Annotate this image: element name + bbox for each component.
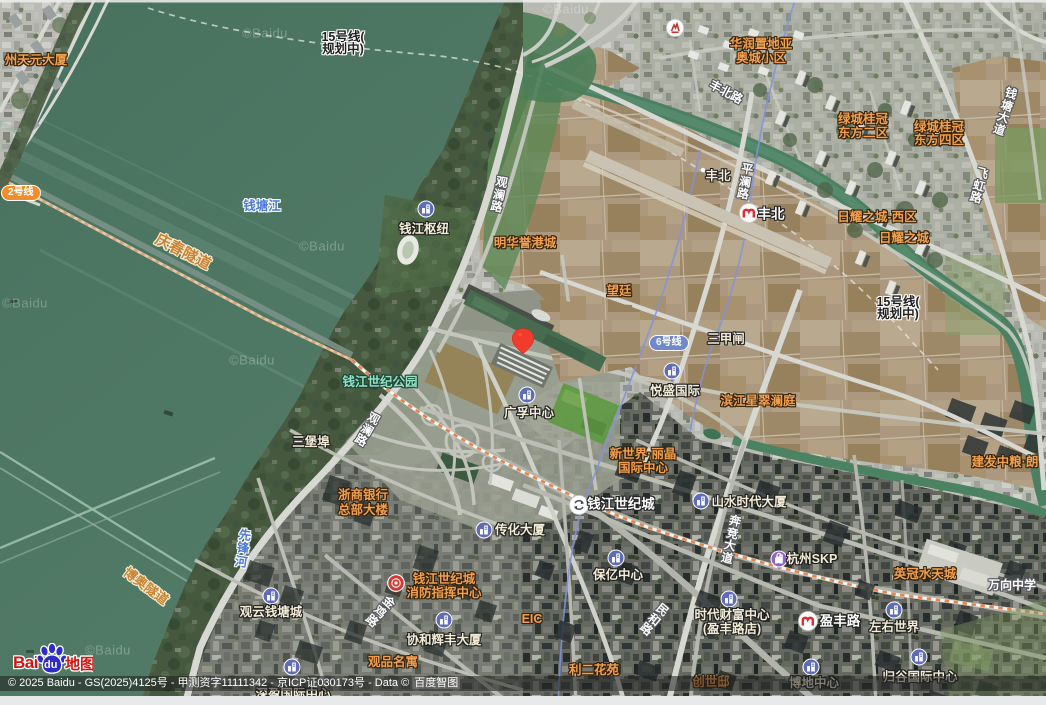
svg-text:du: du [44, 659, 57, 671]
svg-text:Bai: Bai [13, 653, 38, 672]
svg-text:地图: 地图 [65, 655, 93, 673]
